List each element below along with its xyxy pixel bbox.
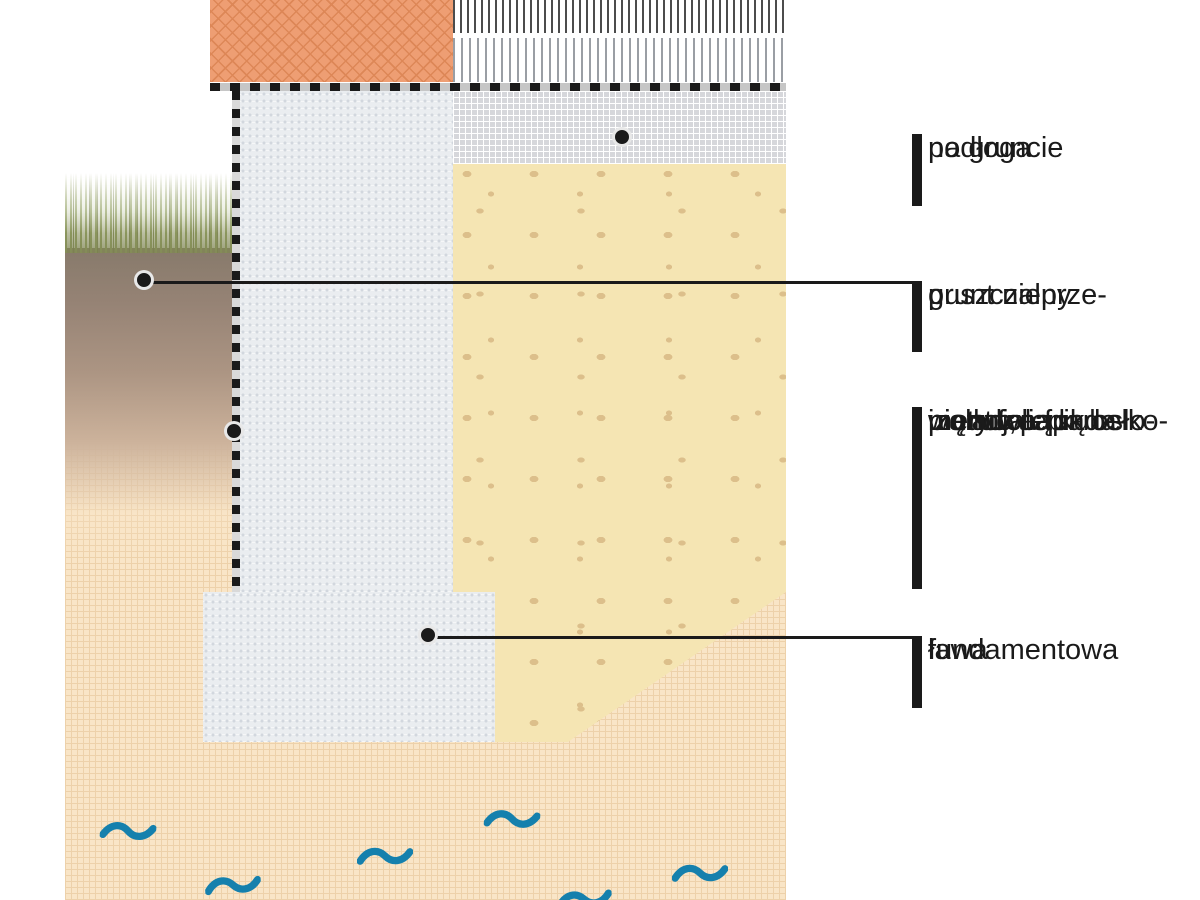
brick-wall (210, 0, 453, 82)
label-bar (912, 134, 922, 206)
callout-dot-izolacja (224, 421, 244, 441)
label-bar (912, 281, 922, 352)
label-bar (912, 636, 922, 708)
water-wave-icon (99, 818, 157, 846)
horizontal-dpc-dashed-line (210, 83, 786, 91)
label-bar (912, 407, 922, 589)
water-wave-icon (483, 807, 540, 834)
topsoil-gradient (65, 248, 233, 560)
callout-dot-lawa (418, 625, 438, 645)
grass-strip (65, 173, 233, 253)
water-wave-icon (672, 862, 728, 886)
label-text-line: puszczalny (928, 277, 1071, 314)
callout-dot-podloga (612, 127, 632, 147)
water-wave-icon (357, 845, 413, 869)
foundation-wall (240, 91, 453, 592)
footing (203, 592, 495, 742)
label-text-line: fundamentowa (928, 632, 1118, 669)
vertical-insulation-dashed-line (232, 91, 240, 592)
callout-dot-grunt (134, 270, 154, 290)
label-text-line: wą lub papą (928, 403, 1084, 440)
water-wave-icon (204, 873, 261, 900)
callout-line-lawa (431, 636, 915, 639)
callout-line-grunt (147, 281, 915, 284)
label-text-line: na gruncie (928, 130, 1063, 167)
floor-finish-hatch-upper (453, 0, 786, 33)
floor-finish-hatch-lower (453, 38, 786, 82)
foundation-cross-section-diagram: podłoga na gruncie grunt nieprze- puszcz… (0, 0, 1200, 900)
